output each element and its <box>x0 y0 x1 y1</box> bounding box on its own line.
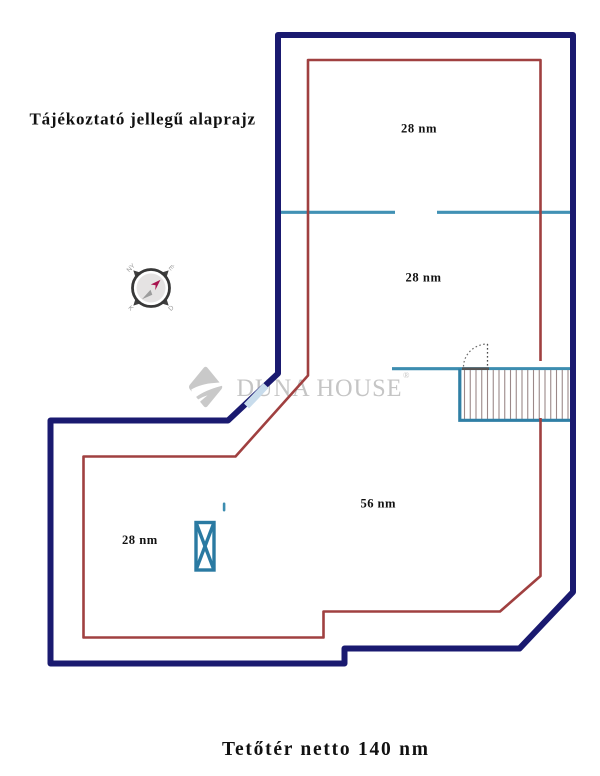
svg-text:56 nm: 56 nm <box>361 497 397 511</box>
svg-text:K: K <box>126 304 134 312</box>
svg-text:28 nm: 28 nm <box>401 122 437 136</box>
svg-text:Tájékoztató jellegű alaprajz: Tájékoztató jellegű alaprajz <box>30 110 256 129</box>
svg-text:Tetőtér netto 140 nm: Tetőtér netto 140 nm <box>222 739 428 760</box>
svg-text:28 nm: 28 nm <box>122 533 158 547</box>
svg-text:28 nm: 28 nm <box>406 271 442 285</box>
svg-text:®: ® <box>403 370 410 380</box>
svg-text:D: D <box>167 304 175 312</box>
